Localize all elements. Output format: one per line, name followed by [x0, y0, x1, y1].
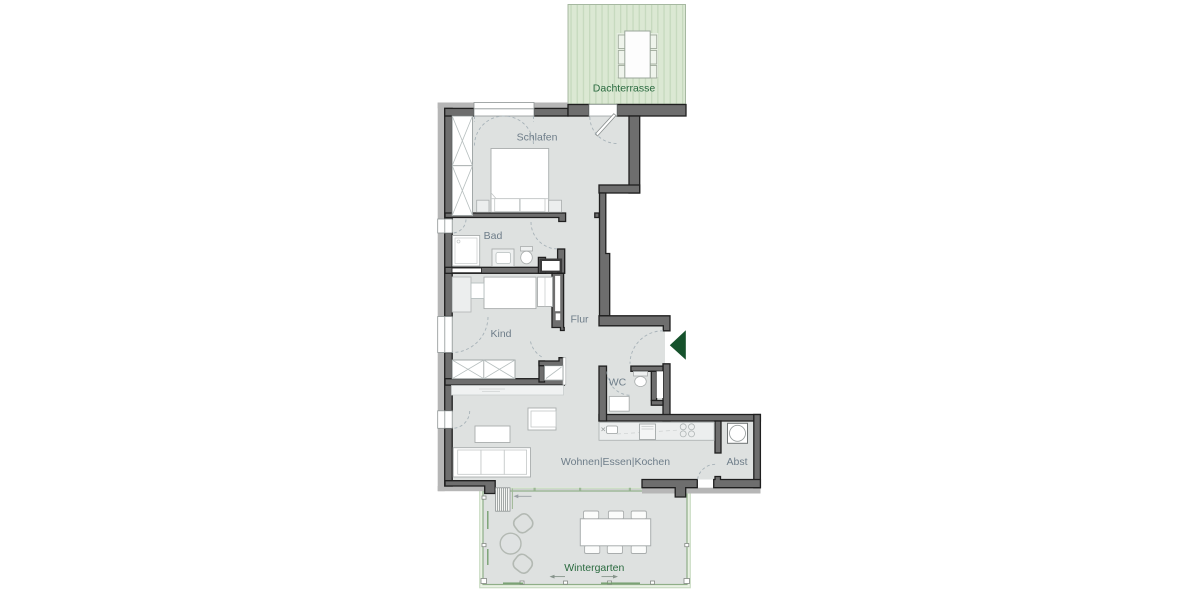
- svg-text:Schlafen: Schlafen: [517, 132, 558, 144]
- svg-text:Wohnen|Essen|Kochen: Wohnen|Essen|Kochen: [561, 456, 670, 468]
- svg-text:Wintergarten: Wintergarten: [564, 562, 624, 574]
- svg-text:WC: WC: [609, 377, 627, 389]
- svg-text:Bad: Bad: [484, 230, 503, 242]
- svg-text:Dachterrasse: Dachterrasse: [593, 83, 656, 95]
- svg-text:Kind: Kind: [490, 328, 511, 340]
- svg-text:Flur: Flur: [570, 314, 589, 326]
- svg-text:Abst: Abst: [726, 456, 747, 468]
